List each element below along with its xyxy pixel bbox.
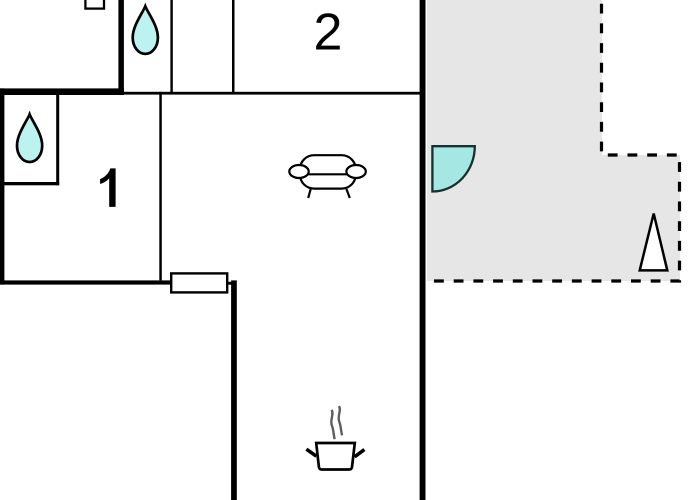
svg-text:2: 2: [314, 4, 343, 62]
